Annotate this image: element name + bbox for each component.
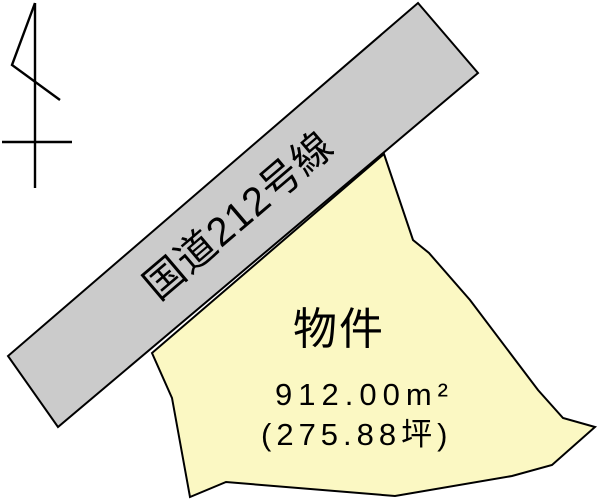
parcel-area-sqm-label: 912.00m² — [275, 377, 454, 412]
parcel-title-label: 物件 — [293, 305, 385, 354]
north-arrow-icon — [2, 3, 72, 188]
land-plot-map: 国道212号線 物件 912.00m² (275.88坪) — [0, 0, 600, 500]
parcel-area-tsubo-label: (275.88坪) — [261, 417, 452, 452]
